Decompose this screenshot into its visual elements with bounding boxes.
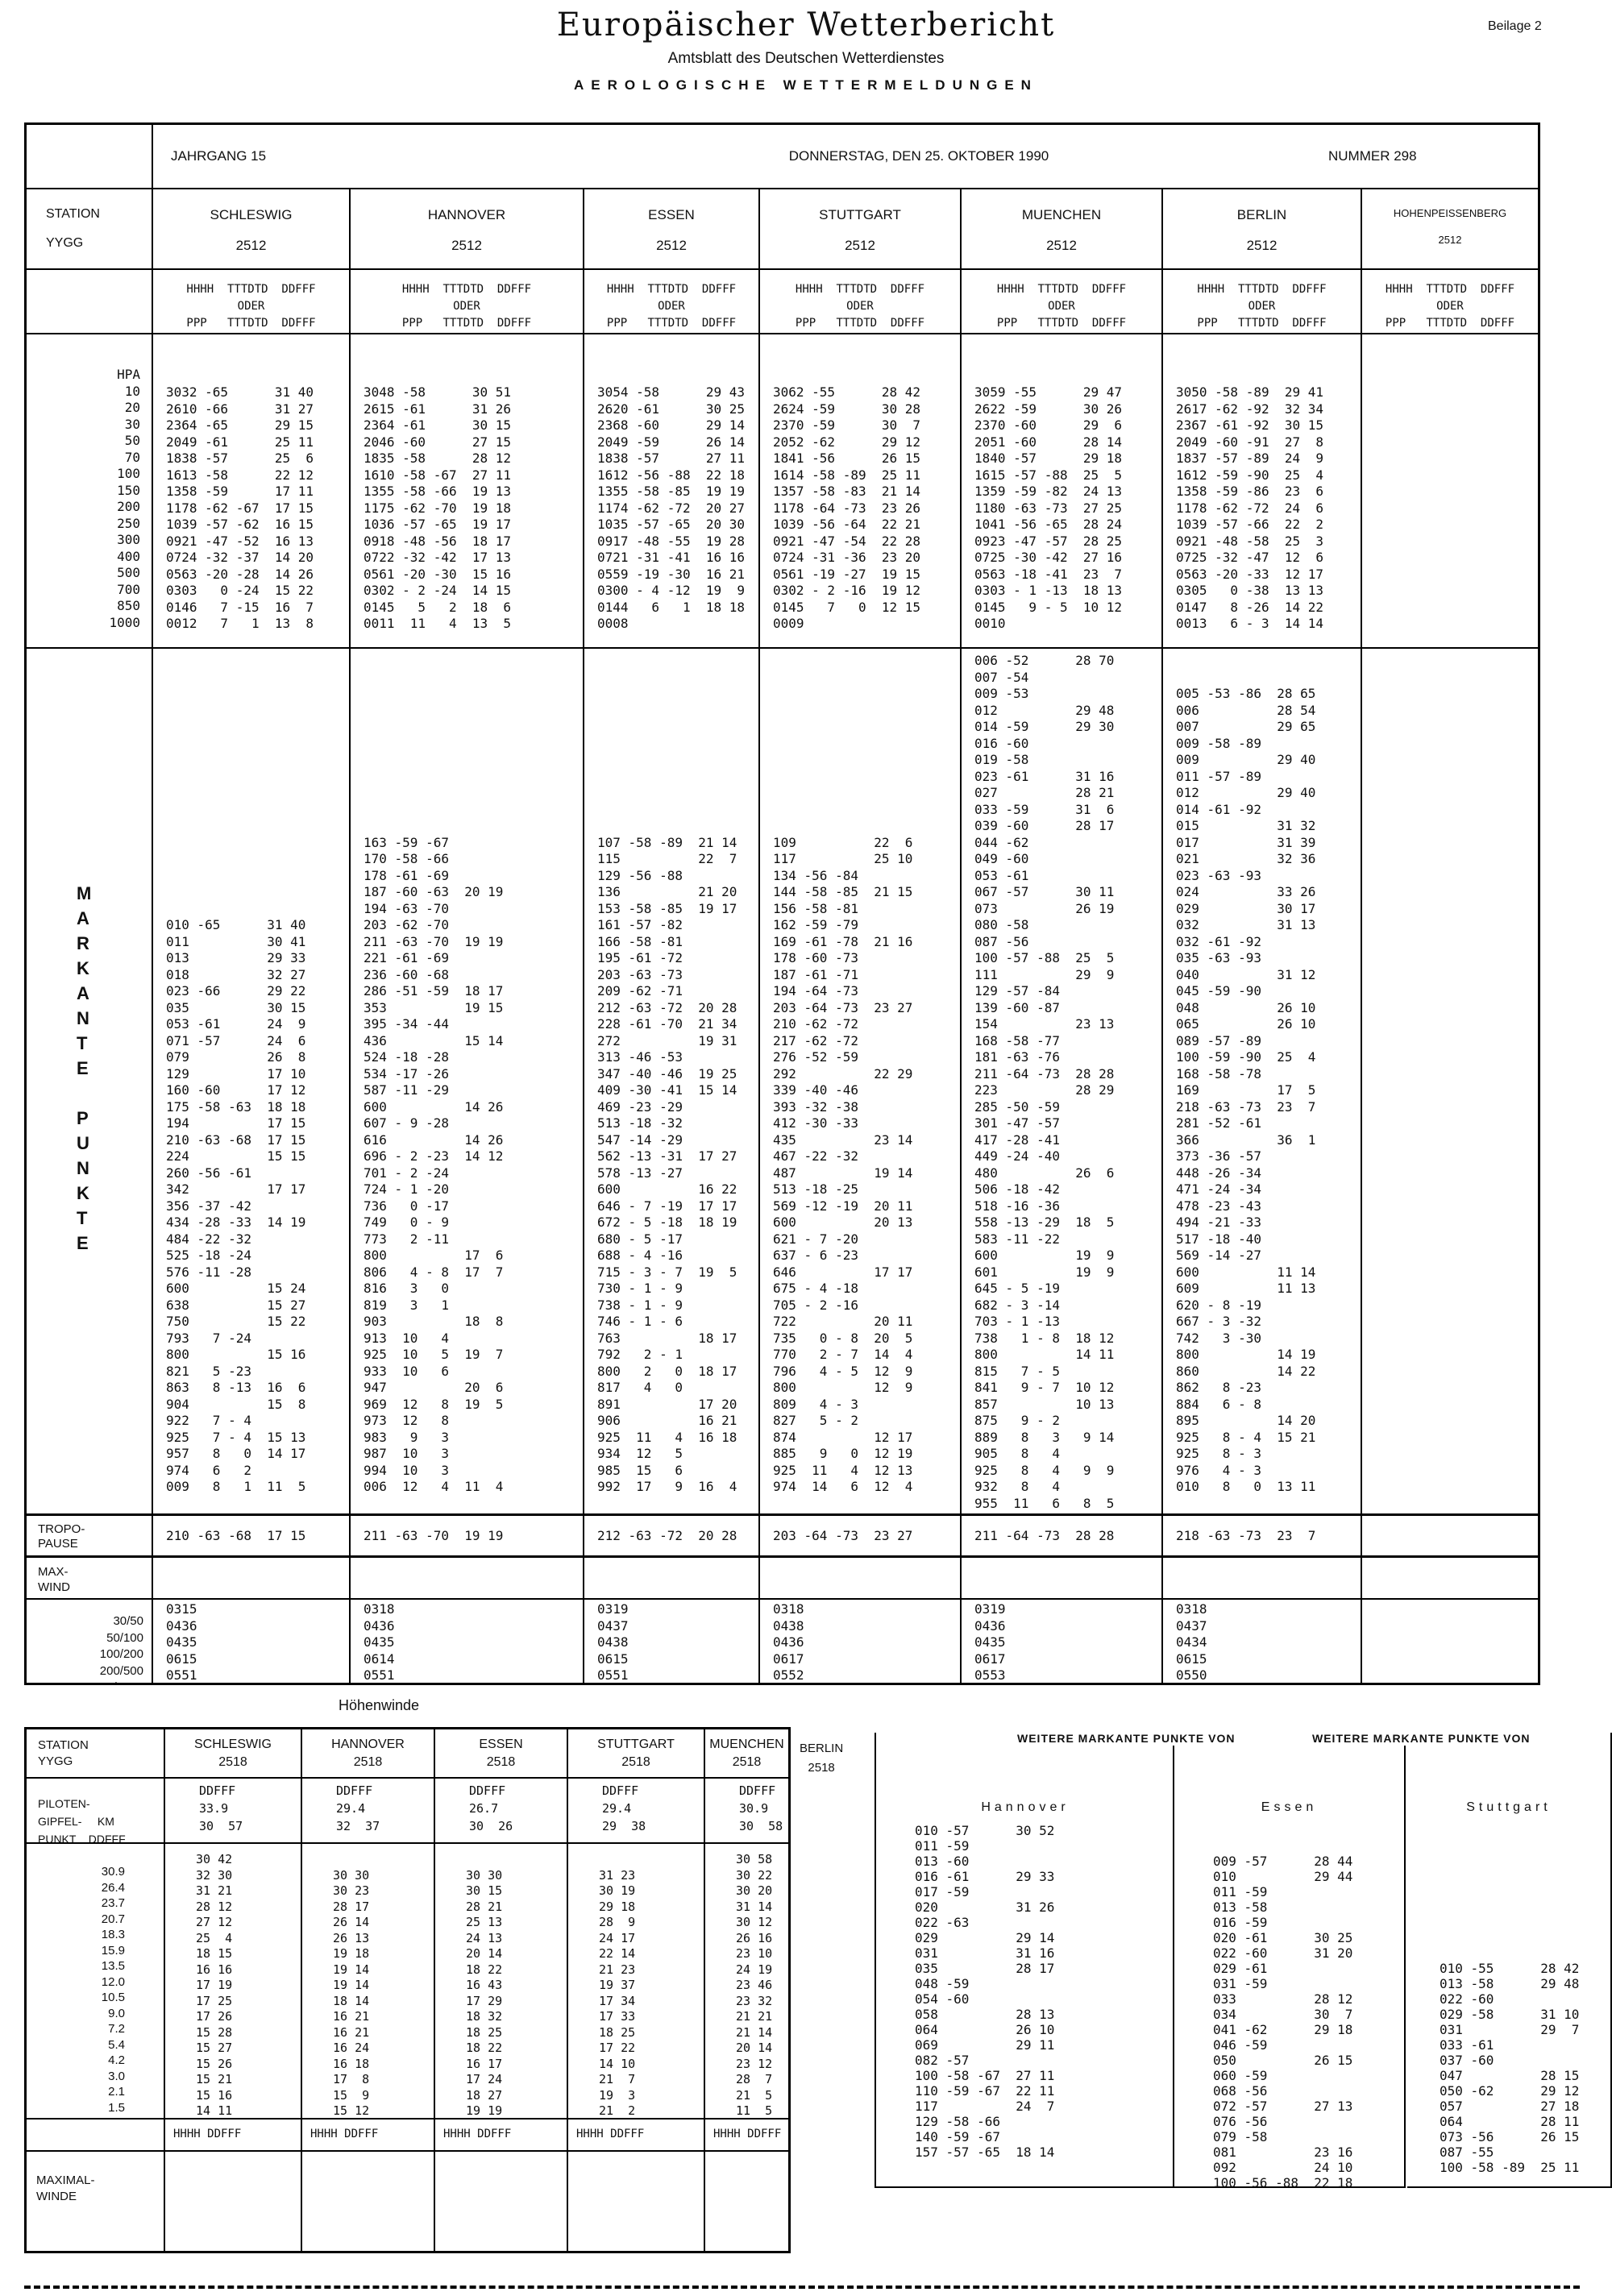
station-header-stuttgart: STUTTGART 2512 [758, 188, 960, 268]
hpa-data-muenchen: 3059 -55 29 47 2622 -59 30 26 2370 -60 2… [960, 333, 1161, 647]
codes-hohenpeissenberg: HHHH TTTDTD DDFFF ODER PPP TTTDTD DDFFF [1361, 268, 1538, 333]
hw-maximalwinde-essen [434, 2150, 567, 2251]
station-name: BERLIN [1163, 207, 1361, 223]
markante-schleswig: 010 -65 31 40 011 30 41 013 29 33 018 32… [152, 647, 349, 1513]
maxwind-band-hohenpeissenberg [1361, 1555, 1538, 1598]
maxwind-values: 0319 0437 0438 0615 0551 [584, 1600, 758, 1683]
codes-text: HHHH TTTDTD DDFFF ODER PPP TTTDTD DDFFF [1362, 281, 1538, 332]
hw-code-schleswig: HHHH DDFFF [164, 2118, 301, 2150]
jahrgang-label: JAHRGANG 15 [153, 148, 509, 164]
codes-text: HHHH TTTDTD DDFFF ODER PPP TTTDTD DDFFF [351, 281, 583, 332]
tropopause-muenchen: 211 -64 -73 28 28 [960, 1513, 1161, 1555]
hw-maximalwinde-stuttgart [567, 2150, 704, 2251]
hw-winds-essen: 30 30 30 15 28 21 25 13 24 13 20 14 18 2… [434, 1842, 567, 2118]
hw-gipfel-hannover: DDFFF 29.4 32 37 [301, 1777, 434, 1842]
hpa-data-text: 3048 -58 30 51 2615 -61 31 26 2364 -61 3… [351, 384, 583, 633]
hw-winds-muenchen: 30 58 30 22 30 20 31 14 30 12 26 16 23 1… [704, 1842, 788, 2118]
markante-stuttgart: 109 22 6 117 25 10 134 -56 -84 144 -58 -… [758, 647, 960, 1513]
page-subtitle: Amtsblatt des Deutschen Wetterdienstes [0, 50, 1612, 68]
maxwind-schleswig: 0315 0436 0435 0615 0551 [152, 1598, 349, 1683]
hw-code-essen: HHHH DDFFF [434, 2118, 567, 2150]
station-name: HOHENPEISSENBERG [1362, 207, 1538, 219]
hw-maximalwinde-text: MAXIMAL- WINDE [36, 2173, 164, 2205]
hw-station-name: ESSEN [435, 1738, 567, 1752]
hw-gipfel-schleswig: DDFFF 33.9 30 57 [164, 1777, 301, 1842]
station-yygg: 2512 [584, 238, 758, 254]
maxwind-hohenpeissenberg [1361, 1598, 1538, 1683]
hw-station-yygg: 2518 [705, 1755, 788, 1770]
markante-punkte-label: M A R K A N T E P U N K T E [27, 647, 152, 1513]
station-yygg: 2512 [760, 238, 960, 254]
maxwind-band-muenchen [960, 1555, 1161, 1598]
station-header-berlin: BERLIN 2512 [1161, 188, 1361, 268]
hw-station-name: STUTTGART [568, 1738, 704, 1752]
hw-station-yygg: 2518 [800, 1758, 843, 1778]
weitere-data: 010 -57 30 52 011 -59 013 -60 016 -61 29… [876, 1823, 1174, 2160]
hw-gipfel-values: DDFFF 29.4 32 37 [302, 1779, 434, 1835]
hpa-data-hannover: 3048 -58 30 51 2615 -61 31 26 2364 -61 3… [349, 333, 583, 647]
maxwind-stuttgart: 0318 0438 0436 0617 0552 [758, 1598, 960, 1683]
hpa-levels-text: HPA 10 20 30 50 70 100 150 200 250 300 4… [27, 367, 152, 631]
codes-text: HHHH TTTDTD DDFFF ODER PPP TTTDTD DDFFF [1163, 281, 1361, 332]
tropopause-hannover: 211 -63 -70 19 19 [349, 1513, 583, 1555]
hw-station-yygg: 2518 [302, 1755, 434, 1770]
maxwind-label: MAX- WIND [27, 1555, 152, 1598]
maxwind-values: 0319 0436 0435 0617 0553 [962, 1600, 1161, 1683]
hw-code-stuttgart: HHHH DDFFF [567, 2118, 704, 2150]
hpa-data-text: 3062 -55 28 42 2624 -59 30 28 2370 -59 3… [760, 384, 960, 633]
hw-station-name: MUENCHEN [705, 1738, 788, 1752]
tropopause-label-text: TROPO- PAUSE [38, 1522, 152, 1551]
hw-header-berlin: BERLIN 2518 [800, 1739, 843, 1778]
issue-row-spacer [27, 125, 152, 188]
markante-essen: 107 -58 -89 21 14 115 22 7 129 -56 -88 1… [583, 647, 758, 1513]
markante-text: 005 -53 -86 28 65 006 28 54 007 29 65 00… [1163, 649, 1361, 1496]
maxwind-values: 0318 0436 0435 0614 0551 [351, 1600, 583, 1683]
weitere-data: 009 -57 28 44 010 29 44 011 -59 013 -58 … [1174, 1823, 1404, 2190]
markante-hannover: 163 -59 -67 170 -58 -66 178 -61 -69 187 … [349, 647, 583, 1513]
hw-maximalwinde-hannover [301, 2150, 434, 2251]
station-name: ESSEN [584, 207, 758, 223]
maxwind-band-schleswig [152, 1555, 349, 1598]
weitere-column-stuttgart: Stuttgart 010 -55 28 42 013 -58 29 48 02… [1407, 1733, 1612, 2188]
hw-gipfel-label-text: PILOTEN- GIPFEL- KM PUNKT DDFFF [27, 1790, 164, 1842]
tropopause-schleswig: 210 -63 -68 17 15 [152, 1513, 349, 1555]
maxwind-layers-label: 30/50 50/100 100/200 200/500 500/1000 [27, 1598, 152, 1683]
station-header-schleswig: SCHLESWIG 2512 [152, 188, 349, 268]
weitere-column-essen: Essen 009 -57 28 44 010 29 44 011 -59 01… [1173, 1733, 1406, 2188]
hpa-data-stuttgart: 3062 -55 28 42 2624 -59 30 28 2370 -59 3… [758, 333, 960, 647]
station-name: HANNOVER [351, 207, 583, 223]
markante-text: 163 -59 -67 170 -58 -66 178 -61 -69 187 … [351, 649, 583, 1496]
hpa-data-text: 3032 -65 31 40 2610 -66 31 27 2364 -65 2… [153, 384, 349, 633]
codes-spacer [27, 268, 152, 333]
tropopause-value: 203 -64 -73 23 27 [760, 1528, 960, 1545]
weitere-heading-left: WEITERE MARKANTE PUNKTE VON [1014, 1731, 1238, 1746]
markante-muenchen: 006 -52 28 70 007 -54 009 -53 012 29 48 … [960, 647, 1161, 1513]
hw-station-yygg: 2518 [165, 1755, 301, 1770]
hw-station-name: HANNOVER [302, 1738, 434, 1752]
hw-gipfel-label: PILOTEN- GIPFEL- KM PUNKT DDFFF [27, 1777, 164, 1842]
hw-gipfel-values: DDFFF 33.9 30 57 [165, 1779, 301, 1835]
station-header-hannover: HANNOVER 2512 [349, 188, 583, 268]
hw-header-essen: ESSEN 2518 [434, 1729, 567, 1777]
nummer-label: NUMMER 298 [1328, 148, 1538, 164]
issue-row: JAHRGANG 15 DONNERSTAG, DEN 25. OKTOBER … [152, 125, 1538, 188]
station-yygg-label: STATION YYGG [27, 188, 152, 268]
weitere-station-name: Essen [1174, 1800, 1404, 1815]
hpa-data-hohenpeissenberg [1361, 333, 1538, 647]
station-name: MUENCHEN [962, 207, 1161, 223]
weitere-station-name: Hannover [876, 1800, 1174, 1815]
hw-wind-values: 31 23 30 19 29 18 28 9 24 17 22 14 21 23… [568, 1844, 704, 2118]
weitere-heading-right: WEITERE MARKANTE PUNKTE VON [1309, 1731, 1533, 1746]
tropopause-essen: 212 -63 -72 20 28 [583, 1513, 758, 1555]
hpa-data-essen: 3054 -58 29 43 2620 -61 30 25 2368 -60 2… [583, 333, 758, 647]
hw-gipfel-values: DDFFF 29.4 29 38 [568, 1779, 704, 1835]
hw-maximalwinde-label: MAXIMAL- WINDE [27, 2150, 164, 2251]
markante-hohenpeissenberg [1361, 647, 1538, 1513]
codes-schleswig: HHHH TTTDTD DDFFF ODER PPP TTTDTD DDFFF [152, 268, 349, 333]
station-yygg: 2512 [351, 238, 583, 254]
codes-text: HHHH TTTDTD DDFFF ODER PPP TTTDTD DDFFF [962, 281, 1161, 332]
hw-maximalwinde-muenchen [704, 2150, 788, 2251]
hw-gipfel-stuttgart: DDFFF 29.4 29 38 [567, 1777, 704, 1842]
markante-text: 006 -52 28 70 007 -54 009 -53 012 29 48 … [962, 649, 1161, 1512]
hw-gipfel-values: DDFFF 30.9 30 58 [705, 1779, 788, 1835]
hw-km-values: 30.9 26.4 23.7 20.7 18.3 15.9 13.5 12.0 … [27, 1856, 164, 2118]
hw-km-column: 30.9 26.4 23.7 20.7 18.3 15.9 13.5 12.0 … [27, 1842, 164, 2118]
page-tagline: AEROLOGISCHE WETTERMELDUNGEN [0, 77, 1612, 93]
page-title: Europäischer Wetterbericht [0, 6, 1612, 44]
weitere-data: 010 -55 28 42 013 -58 29 48 022 -60 029 … [1407, 1823, 1610, 2175]
tropopause-value: 211 -64 -73 28 28 [962, 1528, 1161, 1545]
tropopause-value: 211 -63 -70 19 19 [351, 1528, 583, 1545]
hpa-data-berlin: 3050 -58 -89 29 41 2617 -62 -92 32 34 23… [1161, 333, 1361, 647]
hw-gipfel-essen: DDFFF 26.7 30 26 [434, 1777, 567, 1842]
maxwind-band-stuttgart [758, 1555, 960, 1598]
codes-text: HHHH TTTDTD DDFFF ODER PPP TTTDTD DDFFF [153, 281, 349, 332]
tropopause-berlin: 218 -63 -73 23 7 [1161, 1513, 1361, 1555]
hpa-data-text: 3050 -58 -89 29 41 2617 -62 -92 32 34 23… [1163, 384, 1361, 633]
maxwind-band-berlin [1161, 1555, 1361, 1598]
hw-code-muenchen: HHHH DDFFF [704, 2118, 788, 2150]
maxwind-hannover: 0318 0436 0435 0614 0551 [349, 1598, 583, 1683]
hw-wind-values: 30 30 30 23 28 17 26 14 26 13 19 18 19 1… [302, 1844, 434, 2118]
markante-text: 109 22 6 117 25 10 134 -56 -84 144 -58 -… [760, 649, 960, 1496]
hw-yygg-label-text: YYGG [38, 1754, 164, 1770]
station-header-hohenpeissenberg: HOHENPEISSENBERG 2512 [1361, 188, 1538, 268]
maxwind-layers-text: 30/50 50/100 100/200 200/500 500/1000 [27, 1612, 152, 1683]
hw-station-name: SCHLESWIG [165, 1738, 301, 1752]
maxwind-muenchen: 0319 0436 0435 0617 0553 [960, 1598, 1161, 1683]
station-header-muenchen: MUENCHEN 2512 [960, 188, 1161, 268]
markante-label-text: M A R K A N T E P U N K T E [27, 881, 152, 1256]
codes-muenchen: HHHH TTTDTD DDFFF ODER PPP TTTDTD DDFFF [960, 268, 1161, 333]
station-header-essen: ESSEN 2512 [583, 188, 758, 268]
hpa-data-text: 3054 -58 29 43 2620 -61 30 25 2368 -60 2… [584, 384, 758, 633]
codes-stuttgart: HHHH TTTDTD DDFFF ODER PPP TTTDTD DDFFF [758, 268, 960, 333]
maxwind-values: 0315 0436 0435 0615 0551 [153, 1600, 349, 1683]
station-name: STUTTGART [760, 207, 960, 223]
hw-station-yygg: 2518 [568, 1755, 704, 1770]
maxwind-values: 0318 0438 0436 0617 0552 [760, 1600, 960, 1683]
station-name: SCHLESWIG [153, 207, 349, 223]
station-yygg: 2512 [962, 238, 1161, 254]
codes-text: HHHH TTTDTD DDFFF ODER PPP TTTDTD DDFFF [760, 281, 960, 332]
tropopause-label: TROPO- PAUSE [27, 1513, 152, 1555]
codes-hannover: HHHH TTTDTD DDFFF ODER PPP TTTDTD DDFFF [349, 268, 583, 333]
weitere-column-hannover: Hannover 010 -57 30 52 011 -59 013 -60 0… [875, 1733, 1174, 2188]
aerological-table: JAHRGANG 15 DONNERSTAG, DEN 25. OKTOBER … [24, 122, 1540, 1685]
hoehenwinde-table: STATION YYGG SCHLESWIG 2518 HANNOVER 251… [24, 1727, 791, 2253]
bottom-divider [24, 2286, 1580, 2289]
station-yygg: 2512 [1362, 234, 1538, 246]
hpa-data-text: 3059 -55 29 47 2622 -59 30 26 2370 -60 2… [962, 384, 1161, 633]
tropopause-hohenpeissenberg [1361, 1513, 1538, 1555]
codes-text: HHHH TTTDTD DDFFF ODER PPP TTTDTD DDFFF [584, 281, 758, 332]
hw-station-yygg: 2518 [435, 1755, 567, 1770]
maxwind-values: 0318 0437 0434 0615 0550 [1163, 1600, 1361, 1683]
hw-station-label-text: STATION [38, 1738, 164, 1754]
maxwind-essen: 0319 0437 0438 0615 0551 [583, 1598, 758, 1683]
hw-wind-values: 30 30 30 15 28 21 25 13 24 13 20 14 18 2… [435, 1844, 567, 2118]
hw-station-label: STATION YYGG [27, 1729, 164, 1777]
hw-station-name: BERLIN [800, 1739, 843, 1758]
hw-header-hannover: HANNOVER 2518 [301, 1729, 434, 1777]
hw-winds-stuttgart: 31 23 30 19 29 18 28 9 24 17 22 14 21 23… [567, 1842, 704, 2118]
markante-text: 107 -58 -89 21 14 115 22 7 129 -56 -88 1… [584, 649, 758, 1496]
hpa-levels-label: HPA 10 20 30 50 70 100 150 200 250 300 4… [27, 333, 152, 647]
maxwind-label-text: MAX- WIND [38, 1564, 152, 1595]
station-label: STATION [46, 207, 152, 222]
tropopause-value: 210 -63 -68 17 15 [153, 1528, 349, 1545]
hw-header-stuttgart: STUTTGART 2518 [567, 1729, 704, 1777]
hw-code-spacer [27, 2118, 164, 2150]
maxwind-band-essen [583, 1555, 758, 1598]
codes-essen: HHHH TTTDTD DDFFF ODER PPP TTTDTD DDFFF [583, 268, 758, 333]
hw-code-hannover: HHHH DDFFF [301, 2118, 434, 2150]
codes-berlin: HHHH TTTDTD DDFFF ODER PPP TTTDTD DDFFF [1161, 268, 1361, 333]
hw-header-muenchen: MUENCHEN 2518 [704, 1729, 788, 1777]
hw-winds-schleswig: 30 42 32 30 31 21 28 12 27 12 25 4 18 15… [164, 1842, 301, 2118]
tropopause-stuttgart: 203 -64 -73 23 27 [758, 1513, 960, 1555]
station-yygg: 2512 [153, 238, 349, 254]
hw-winds-hannover: 30 30 30 23 28 17 26 14 26 13 19 18 19 1… [301, 1842, 434, 2118]
markante-berlin: 005 -53 -86 28 65 006 28 54 007 29 65 00… [1161, 647, 1361, 1513]
tropopause-value: 212 -63 -72 20 28 [584, 1528, 758, 1545]
station-yygg: 2512 [1163, 238, 1361, 254]
hw-wind-values: 30 58 30 22 30 20 31 14 30 12 26 16 23 1… [705, 1844, 788, 2118]
maxwind-band-hannover [349, 1555, 583, 1598]
hw-wind-values: 30 42 32 30 31 21 28 12 27 12 25 4 18 15… [165, 1844, 301, 2118]
markante-text [1362, 649, 1538, 653]
issue-date: DONNERSTAG, DEN 25. OKTOBER 1990 [509, 148, 1328, 164]
tropopause-value: 218 -63 -73 23 7 [1163, 1528, 1361, 1545]
hoehenwinde-heading: Höhenwinde [339, 1697, 419, 1714]
weitere-station-name: Stuttgart [1407, 1800, 1610, 1815]
hpa-data-schleswig: 3032 -65 31 40 2610 -66 31 27 2364 -65 2… [152, 333, 349, 647]
markante-text: 010 -65 31 40 011 30 41 013 29 33 018 32… [153, 649, 349, 1496]
hw-maximalwinde-schleswig [164, 2150, 301, 2251]
maxwind-berlin: 0318 0437 0434 0615 0550 [1161, 1598, 1361, 1683]
hw-gipfel-values: DDFFF 26.7 30 26 [435, 1779, 567, 1835]
hw-gipfel-muenchen: DDFFF 30.9 30 58 [704, 1777, 788, 1842]
hw-header-schleswig: SCHLESWIG 2518 [164, 1729, 301, 1777]
yygg-label: YYGG [46, 236, 152, 251]
weather-report-page: Beilage 2 Europäischer Wetterbericht Amt… [0, 0, 1612, 2296]
